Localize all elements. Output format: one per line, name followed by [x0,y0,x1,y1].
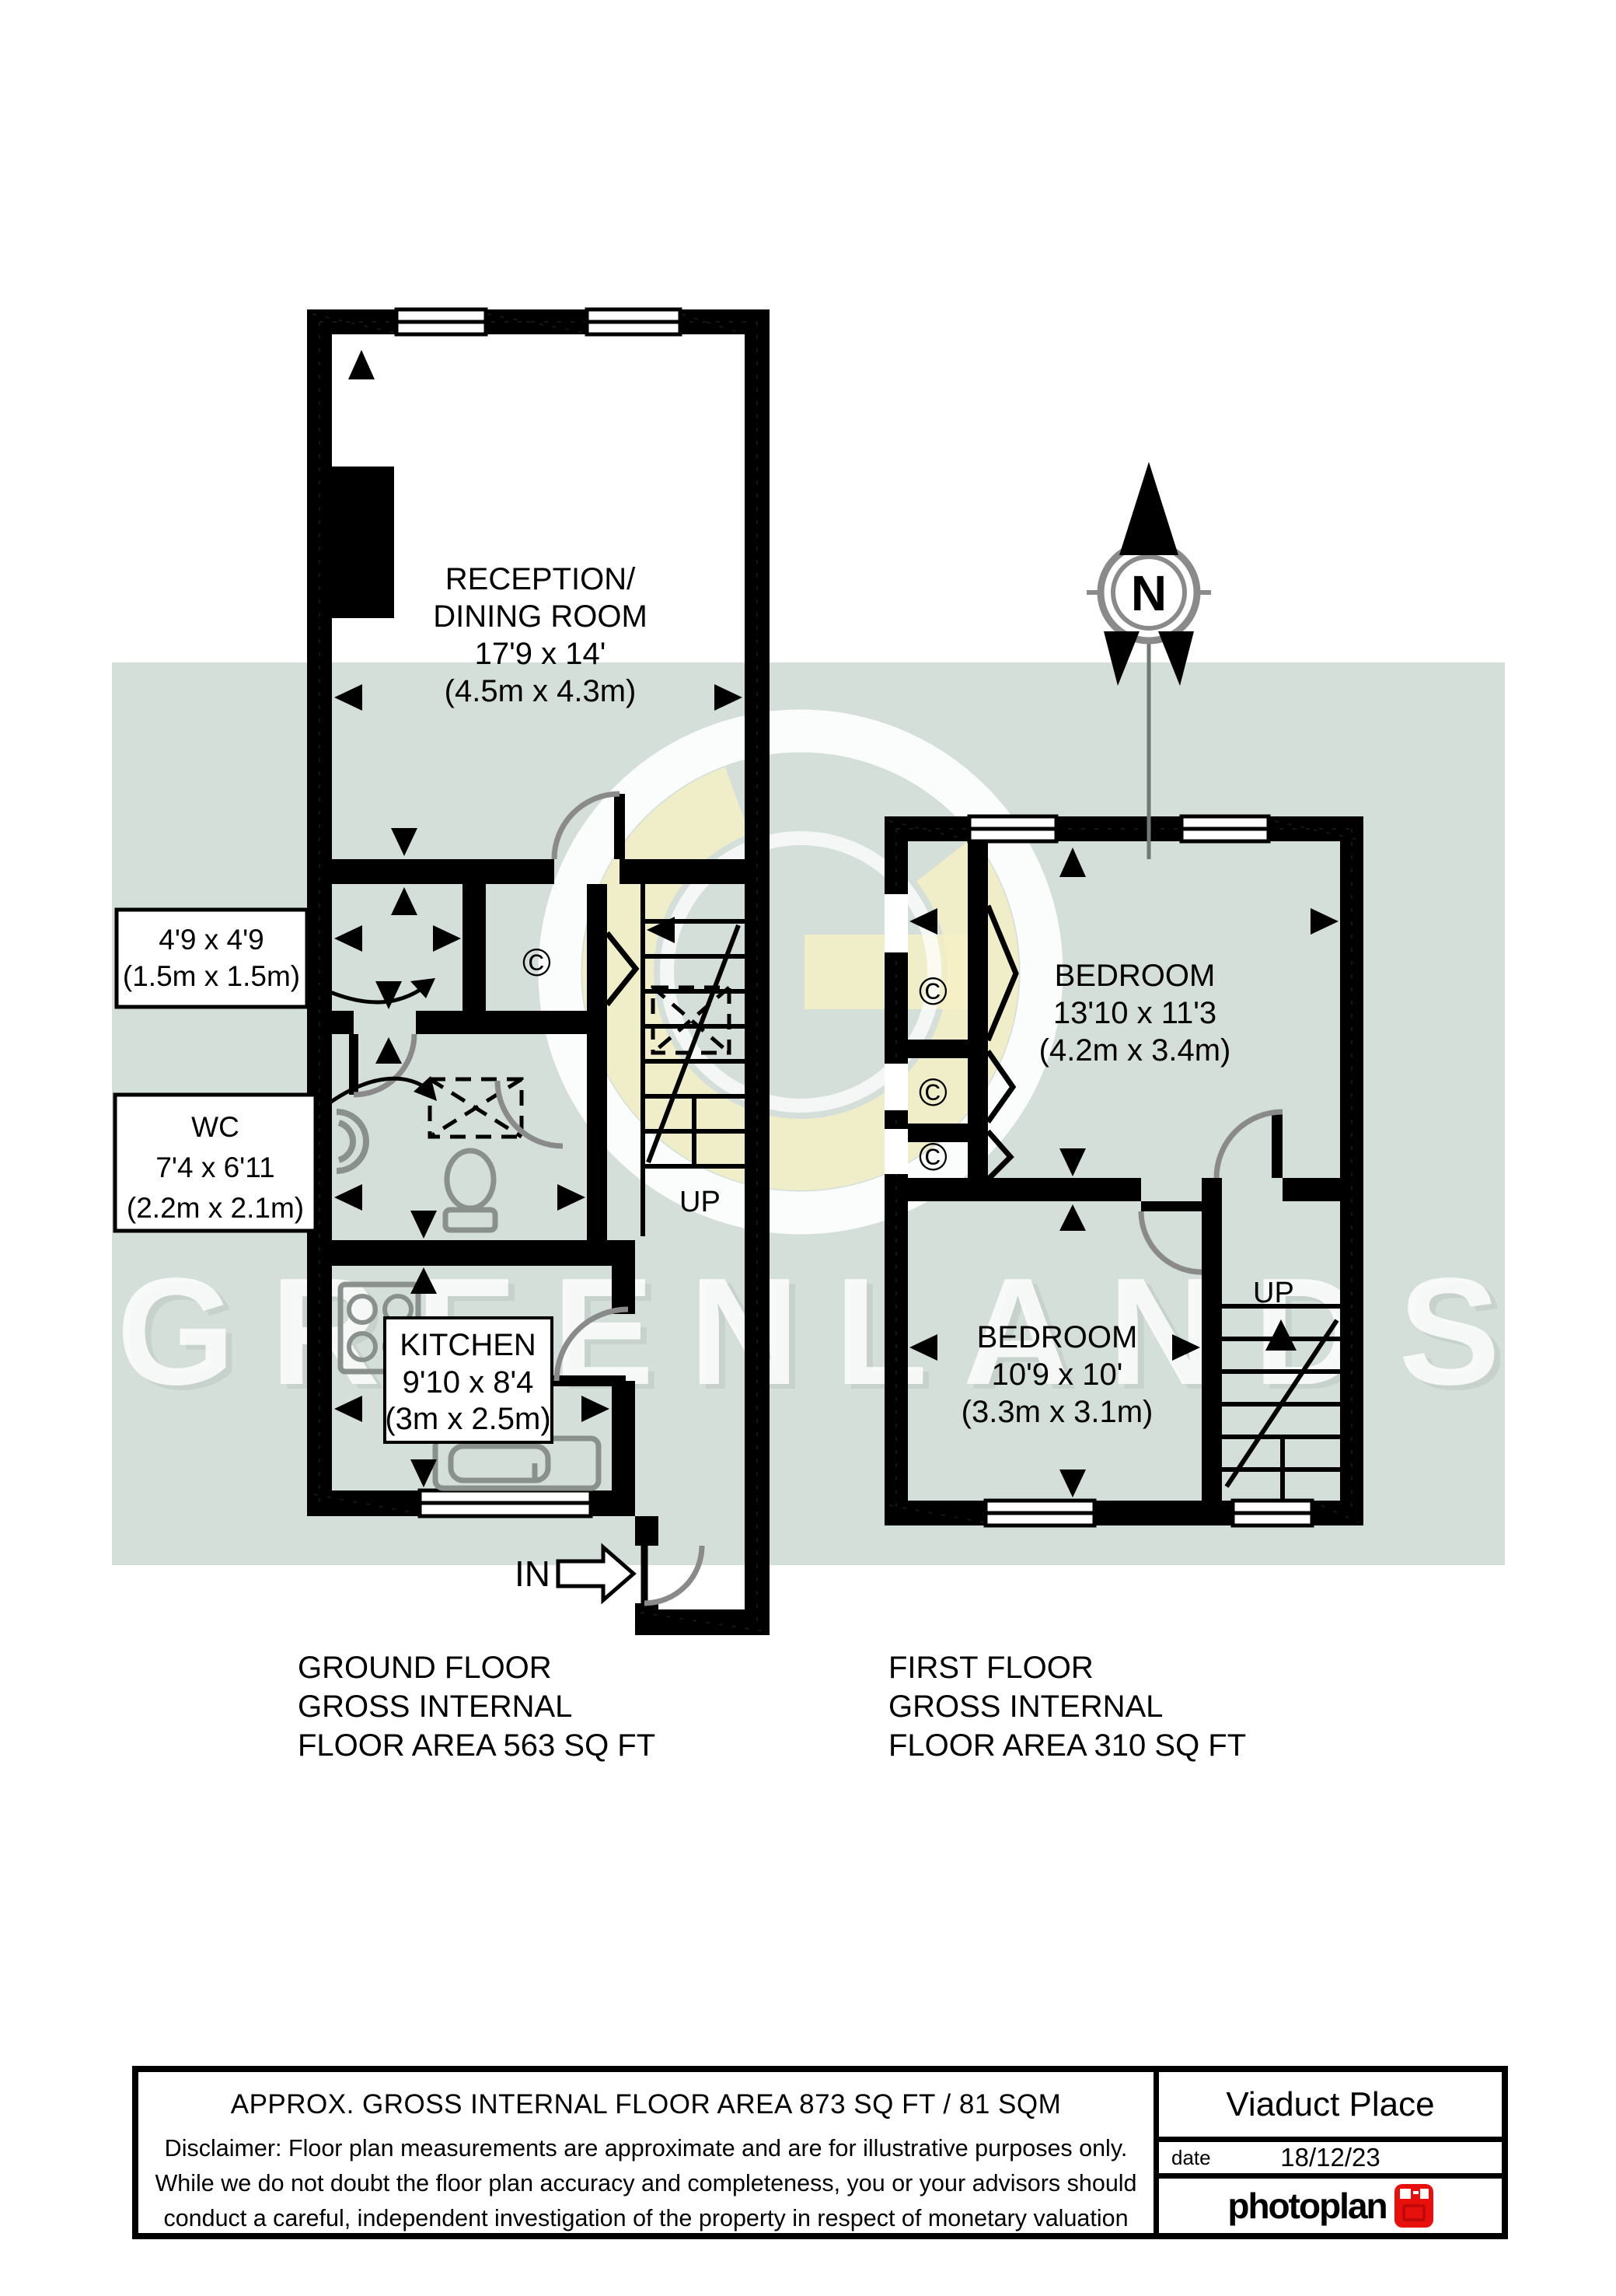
svg-text:DINING ROOM: DINING ROOM [433,599,647,634]
svg-text:7'4 x 6'11: 7'4 x 6'11 [155,1151,274,1183]
date-value: 18/12/23 [1159,2143,1502,2172]
disclaimer-text: Disclaimer: Floor plan measurements are … [155,2131,1136,2236]
footer-right-cell: Viaduct Place date 18/12/23 photoplan [1159,2072,1502,2233]
svg-text:(4.2m x 3.4m): (4.2m x 3.4m) [1039,1033,1231,1068]
svg-text:GROSS INTERNAL: GROSS INTERNAL [888,1690,1163,1724]
disclaimer-line: conduct a careful, independent investiga… [155,2201,1136,2236]
in-label: IN [515,1553,550,1594]
photoplan-logo-text: photoplan [1227,2185,1386,2227]
svg-text:WC: WC [191,1111,239,1143]
svg-text:FIRST FLOOR: FIRST FLOOR [888,1651,1094,1685]
svg-text:4'9 x 4'9: 4'9 x 4'9 [159,924,264,956]
floorplan-canvas: GREENLANDS GREENLANDS [0,0,1616,2296]
svg-text:(3.3m x 3.1m): (3.3m x 3.1m) [962,1395,1154,1429]
bedroom1-label: BEDROOM 13'10 x 11'3 (4.2m x 3.4m) [1039,959,1231,1068]
svg-text:GROUND FLOOR: GROUND FLOOR [298,1651,552,1685]
svg-text:FLOOR AREA 310 SQ FT: FLOOR AREA 310 SQ FT [888,1728,1246,1763]
ground-closet-symbol: © [522,941,551,984]
svg-text:(3m x 2.5m): (3m x 2.5m) [385,1402,550,1436]
svg-text:BEDROOM: BEDROOM [1055,959,1216,993]
first-stairs-up-label: UP [1253,1277,1294,1309]
property-name: Viaduct Place [1159,2072,1502,2142]
area-summary: APPROX. GROSS INTERNAL FLOOR AREA 873 SQ… [231,2089,1062,2120]
svg-text:17'9 x 14': 17'9 x 14' [475,637,606,671]
ground-stairs-up-label: UP [679,1186,721,1218]
north-arrow-icon [1119,462,1178,555]
first-floor-caption: FIRST FLOOR GROSS INTERNAL FLOOR AREA 31… [888,1651,1246,1763]
photoplan-logo: photoplan [1159,2179,1502,2233]
reception-label: RECEPTION/ DINING ROOM 17'9 x 14' (4.5m … [433,562,647,708]
date-row: date 18/12/23 [1159,2142,1502,2179]
svg-text:FLOOR AREA 563 SQ FT: FLOOR AREA 563 SQ FT [298,1728,655,1763]
svg-text:©: © [919,1135,948,1179]
footer-table: APPROX. GROSS INTERNAL FLOOR AREA 873 SQ… [132,2066,1508,2239]
svg-text:(2.2m x 2.1m): (2.2m x 2.1m) [127,1192,304,1224]
svg-text:BEDROOM: BEDROOM [977,1320,1138,1354]
svg-text:RECEPTION/: RECEPTION/ [445,562,636,596]
ground-floor-caption: GROUND FLOOR GROSS INTERNAL FLOOR AREA 5… [298,1651,655,1763]
svg-text:GROSS INTERNAL: GROSS INTERNAL [298,1690,572,1724]
svg-text:9'10 x 8'4: 9'10 x 8'4 [403,1365,534,1400]
svg-text:(4.5m x 4.3m): (4.5m x 4.3m) [445,674,637,708]
svg-text:©: © [919,970,948,1013]
svg-text:10'9 x 10': 10'9 x 10' [992,1358,1123,1392]
footer-left-cell: APPROX. GROSS INTERNAL FLOOR AREA 873 SQ… [138,2072,1159,2233]
svg-text:13'10 x 11'3: 13'10 x 11'3 [1053,996,1216,1030]
svg-text:(1.5m x 1.5m): (1.5m x 1.5m) [123,960,300,992]
camera-icon [1394,2184,1433,2228]
svg-text:KITCHEN: KITCHEN [400,1328,536,1362]
kitchen-label: KITCHEN 9'10 x 8'4 (3m x 2.5m) [385,1318,552,1442]
north-label: N [1131,565,1167,621]
floorplan-page: GREENLANDS GREENLANDS [0,0,1616,2296]
disclaimer-line: While we do not doubt the floor plan acc… [155,2166,1136,2201]
svg-text:©: © [919,1071,948,1114]
disclaimer-line: Disclaimer: Floor plan measurements are … [155,2131,1136,2166]
